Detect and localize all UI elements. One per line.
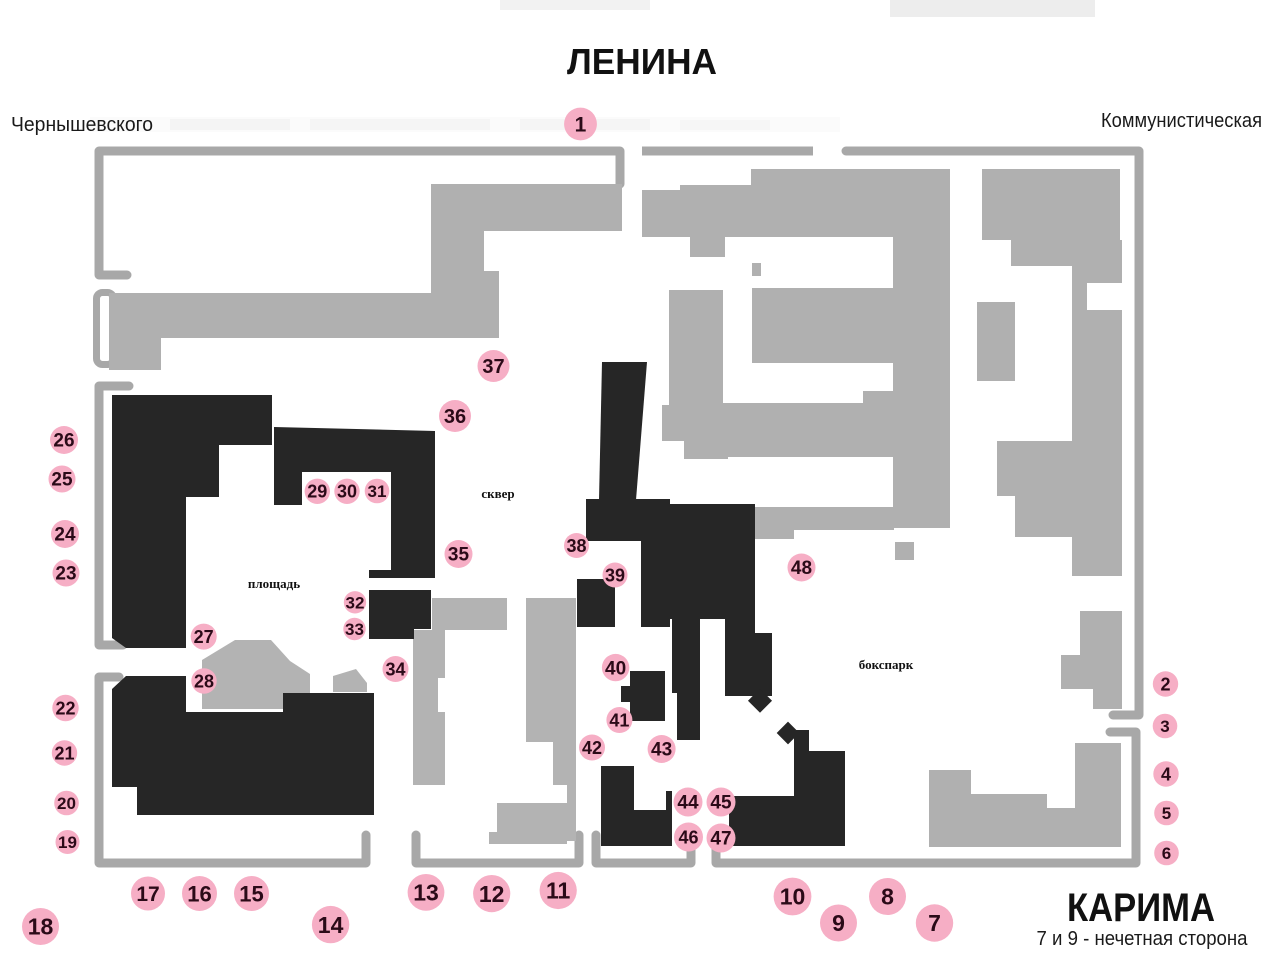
svg-text:22: 22 [55, 698, 75, 718]
svg-text:40: 40 [605, 658, 626, 679]
svg-text:13: 13 [413, 880, 439, 906]
svg-text:площадь: площадь [248, 576, 300, 591]
svg-text:17: 17 [136, 883, 159, 906]
svg-text:34: 34 [385, 659, 405, 679]
svg-text:20: 20 [57, 794, 76, 813]
svg-text:сквер: сквер [481, 486, 514, 501]
svg-text:1: 1 [575, 114, 587, 137]
svg-text:2: 2 [1160, 674, 1170, 694]
svg-text:КАРИМА: КАРИМА [1067, 886, 1215, 930]
svg-text:37: 37 [482, 356, 504, 378]
svg-text:29: 29 [307, 482, 327, 502]
svg-text:25: 25 [51, 470, 73, 491]
svg-text:41: 41 [609, 710, 629, 730]
svg-text:42: 42 [582, 738, 602, 758]
svg-text:32: 32 [346, 593, 365, 612]
svg-text:Коммунистическая: Коммунистическая [1101, 110, 1262, 132]
svg-text:ЛЕНИНА: ЛЕНИНА [567, 41, 717, 82]
svg-text:бокспарк: бокспарк [859, 657, 914, 672]
svg-text:21: 21 [54, 743, 74, 763]
svg-text:5: 5 [1162, 804, 1171, 823]
svg-text:45: 45 [710, 793, 732, 814]
svg-text:36: 36 [444, 406, 466, 428]
svg-text:6: 6 [1162, 844, 1171, 863]
svg-text:23: 23 [55, 564, 76, 585]
svg-text:15: 15 [239, 881, 263, 906]
svg-text:48: 48 [791, 558, 812, 579]
svg-text:24: 24 [54, 525, 76, 546]
svg-text:11: 11 [546, 878, 571, 904]
svg-text:26: 26 [53, 431, 74, 452]
svg-text:12: 12 [479, 881, 505, 907]
svg-text:27: 27 [194, 627, 214, 647]
svg-text:44: 44 [677, 793, 699, 814]
svg-text:33: 33 [345, 620, 364, 639]
svg-text:4: 4 [1161, 764, 1171, 784]
svg-text:19: 19 [58, 833, 77, 852]
svg-text:Чернышевского: Чернышевского [11, 114, 153, 136]
svg-text:31: 31 [368, 482, 387, 501]
svg-text:35: 35 [448, 545, 470, 566]
svg-text:9: 9 [832, 910, 845, 936]
svg-text:39: 39 [605, 565, 625, 585]
svg-text:43: 43 [651, 740, 672, 761]
svg-text:28: 28 [194, 671, 214, 691]
svg-text:18: 18 [28, 914, 54, 940]
svg-text:14: 14 [318, 912, 344, 938]
svg-text:30: 30 [337, 482, 357, 502]
svg-text:7: 7 [928, 910, 941, 936]
svg-text:38: 38 [566, 536, 586, 556]
svg-text:8: 8 [881, 884, 894, 910]
svg-text:46: 46 [678, 827, 698, 847]
svg-text:3: 3 [1160, 717, 1169, 736]
svg-text:47: 47 [710, 829, 731, 850]
svg-text:7 и 9 - нечетная сторона: 7 и 9 - нечетная сторона [1037, 928, 1249, 950]
svg-text:10: 10 [780, 884, 806, 910]
svg-text:16: 16 [187, 881, 211, 906]
